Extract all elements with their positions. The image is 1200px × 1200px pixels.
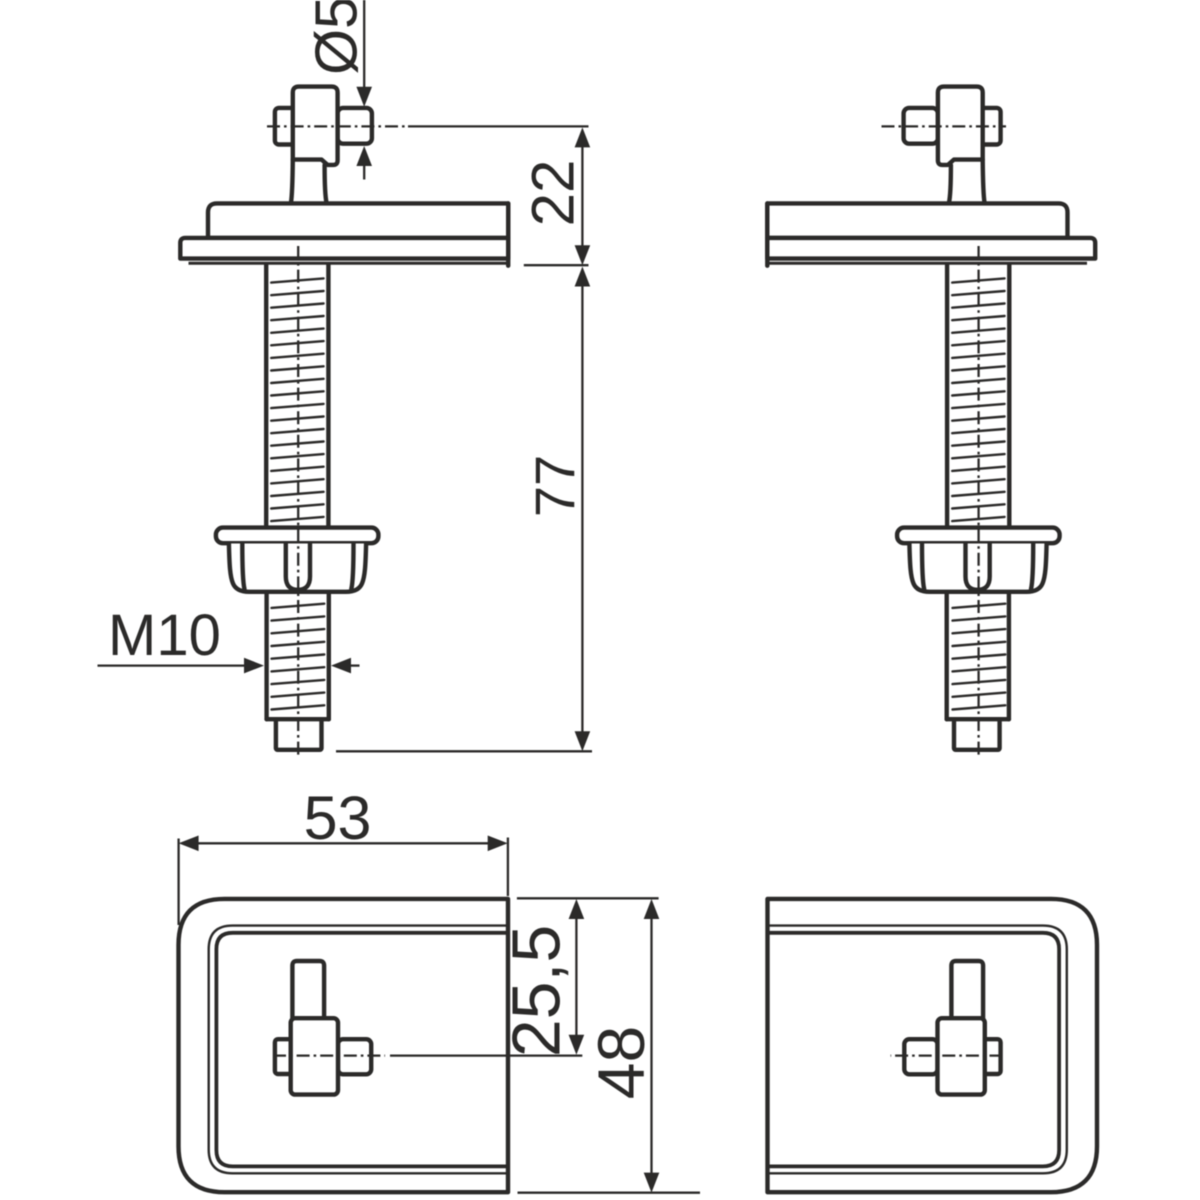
- svg-text:M10: M10: [108, 603, 221, 668]
- svg-text:Ø5: Ø5: [304, 0, 370, 75]
- svg-text:22: 22: [520, 160, 587, 227]
- svg-text:77: 77: [523, 455, 586, 517]
- svg-text:53: 53: [304, 784, 372, 852]
- svg-text:25,5: 25,5: [499, 925, 575, 1057]
- svg-text:48: 48: [584, 1026, 658, 1099]
